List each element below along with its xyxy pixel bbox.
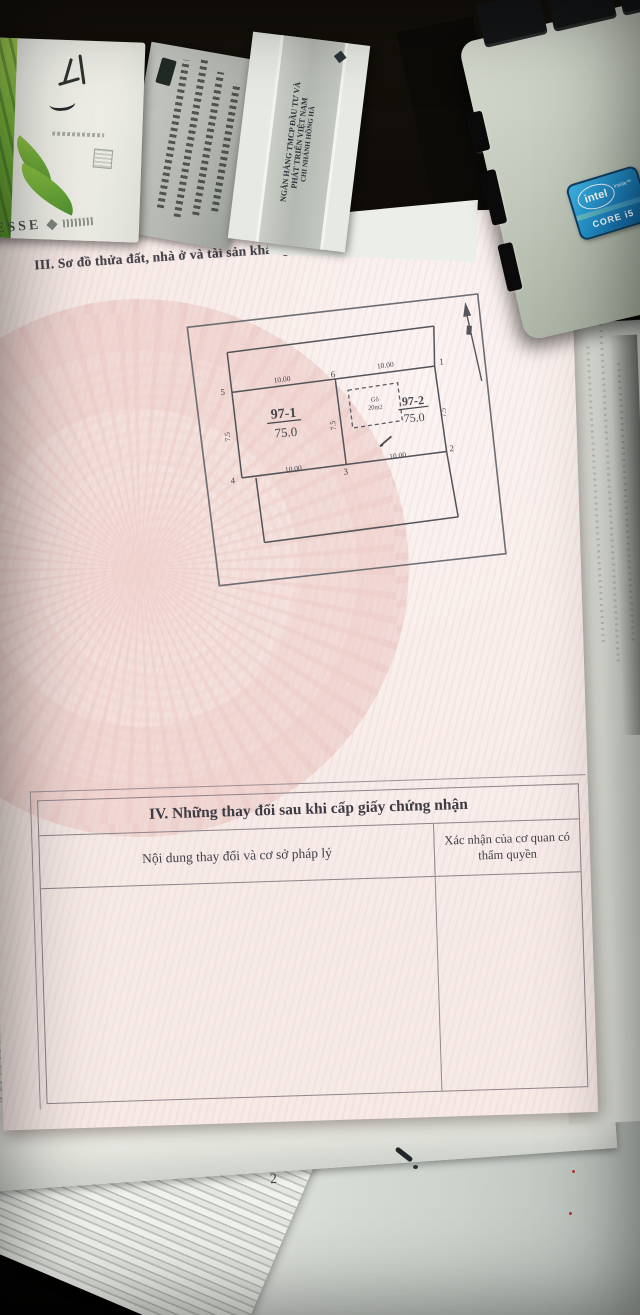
- dim-side-left: 7.5: [222, 431, 232, 442]
- dim-top-left: 10.00: [273, 374, 291, 385]
- cigarette-box: ESSE: [0, 37, 145, 242]
- intel-core-i5-sticker: intel inside™ CORE i5: [565, 165, 640, 242]
- plot2-area: 75.0: [403, 410, 425, 425]
- keyboard-key: [476, 0, 548, 48]
- keyboard-keys: [476, 0, 640, 48]
- land-certificate-page: III. Sơ đồ thửa đất, nhà ở và tài sản kh…: [0, 207, 598, 1130]
- micro-print-lines: [52, 132, 104, 138]
- pen-dot-mark: [413, 1165, 418, 1169]
- brand-row: ESSE: [0, 213, 94, 238]
- north-arrow-icon: [462, 301, 482, 382]
- corner-1: 1: [439, 357, 444, 367]
- column-divider: [435, 877, 443, 1091]
- dim-top-right: 10.00: [376, 360, 394, 371]
- envelope-logo-mark: [155, 57, 177, 86]
- photo-scene: 2 III. Sơ đồ thửa đất, nhà ở và tài sản …: [0, 0, 640, 1315]
- parcel-outline: [226, 325, 459, 544]
- corner-3: 3: [343, 466, 349, 476]
- calligraphy-marks: [58, 77, 80, 86]
- bird-silhouette-icon: [49, 95, 76, 113]
- pen-tick-mark: [379, 436, 392, 446]
- keyboard-key: [545, 0, 617, 32]
- brand-name: ESSE: [0, 218, 42, 238]
- intel-inside-label: inside™: [613, 179, 632, 190]
- red-ink-dot: [569, 1212, 572, 1215]
- red-ink-dot: [572, 1170, 575, 1173]
- structure-area: 20m2: [368, 404, 383, 412]
- corner-6: 6: [330, 369, 336, 379]
- cadastral-diagram: 5 6 1 4 3 2 10.00 10.00 10.00 10.00 7.5 …: [180, 288, 516, 611]
- dim-side-right: 7.5: [438, 407, 448, 418]
- dim-side-mid: 7.5: [328, 420, 338, 431]
- table-body-empty: [41, 872, 587, 1103]
- corner-2: 2: [449, 443, 454, 453]
- plot1-area: 75.0: [274, 424, 298, 441]
- bank-envelope: NGÂN HÀNG TMCP ĐẦU TƯ VÀ PHÁT TRIỂN VIỆT…: [228, 32, 370, 253]
- section4-table: IV. Những thay đổi sau khi cấp giấy chứn…: [37, 783, 588, 1104]
- plot2-number: 97-2: [402, 393, 425, 409]
- column-header-confirmation: Xác nhận của cơ quan có thẩm quyền: [434, 819, 580, 876]
- calligraphy-marks: [78, 54, 85, 84]
- keyboard-key: [614, 0, 640, 16]
- dim-bottom-left: 10.00: [284, 463, 302, 474]
- page-number: 2: [269, 1172, 277, 1188]
- micro-print-lines: [63, 217, 94, 228]
- diamond-logo-icon: [47, 219, 58, 230]
- box-green-side: [0, 37, 18, 238]
- structure-type: Gỗ: [371, 396, 379, 404]
- pen-trapezoid-sketch: [540, 1118, 596, 1152]
- dim-bottom-right: 10.00: [389, 450, 407, 461]
- corner-5: 5: [220, 387, 226, 397]
- corner-4: 4: [230, 475, 236, 485]
- stamp-square: [93, 149, 114, 170]
